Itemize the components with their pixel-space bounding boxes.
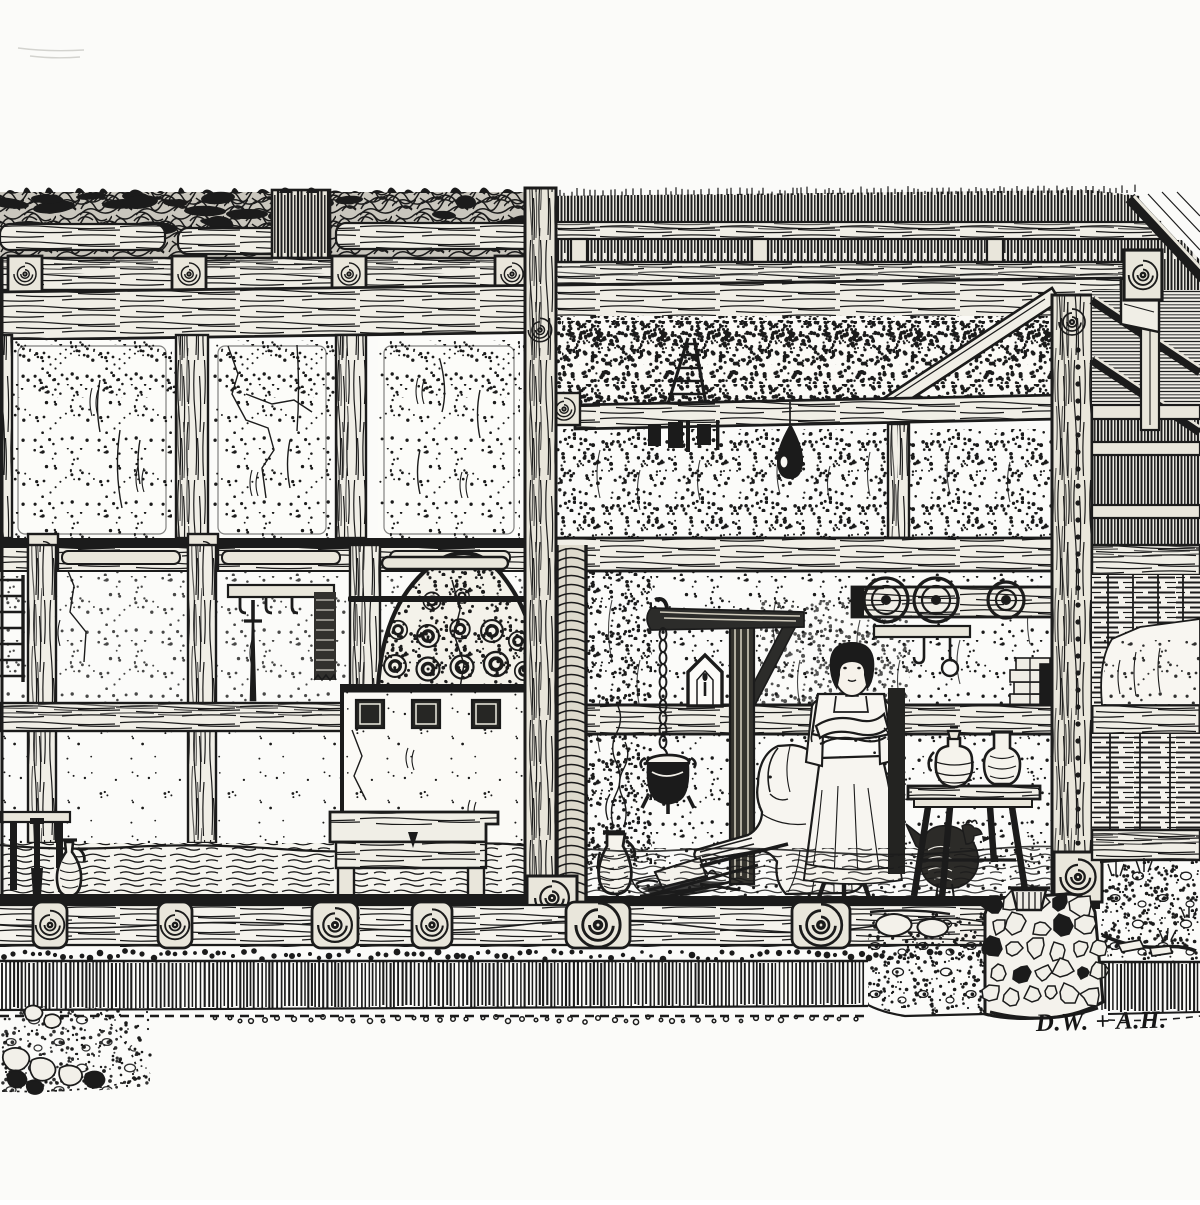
svg-text:D.W. + A.H.: D.W. + A.H.	[1034, 1007, 1167, 1037]
